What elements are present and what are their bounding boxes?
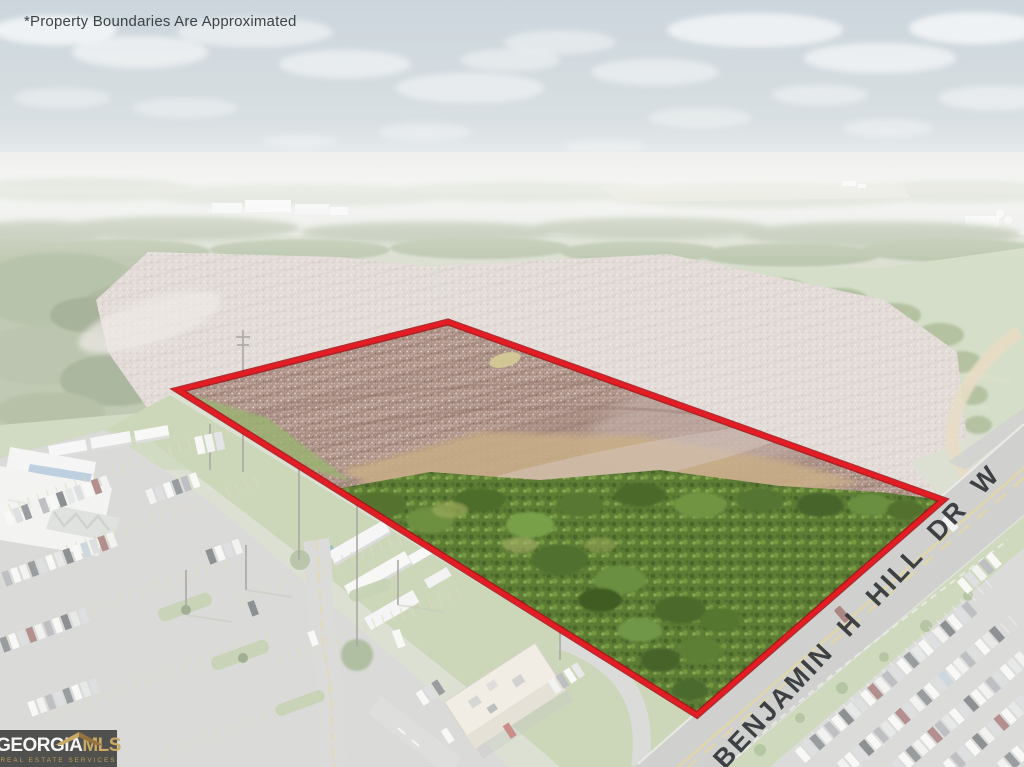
disclaimer-text: *Property Boundaries Are Approximated (24, 13, 297, 30)
georgia-mls-logo: GEORGIAMLS REAL ESTATE SERVICES (0, 730, 117, 767)
aerial-listing-photo: *Property Boundaries Are Approximated BE… (0, 0, 1024, 767)
wash-overlay (0, 0, 1024, 767)
aerial-scene (0, 0, 1024, 767)
logo-tagline: REAL ESTATE SERVICES (0, 757, 116, 764)
roof-icon (55, 732, 103, 745)
